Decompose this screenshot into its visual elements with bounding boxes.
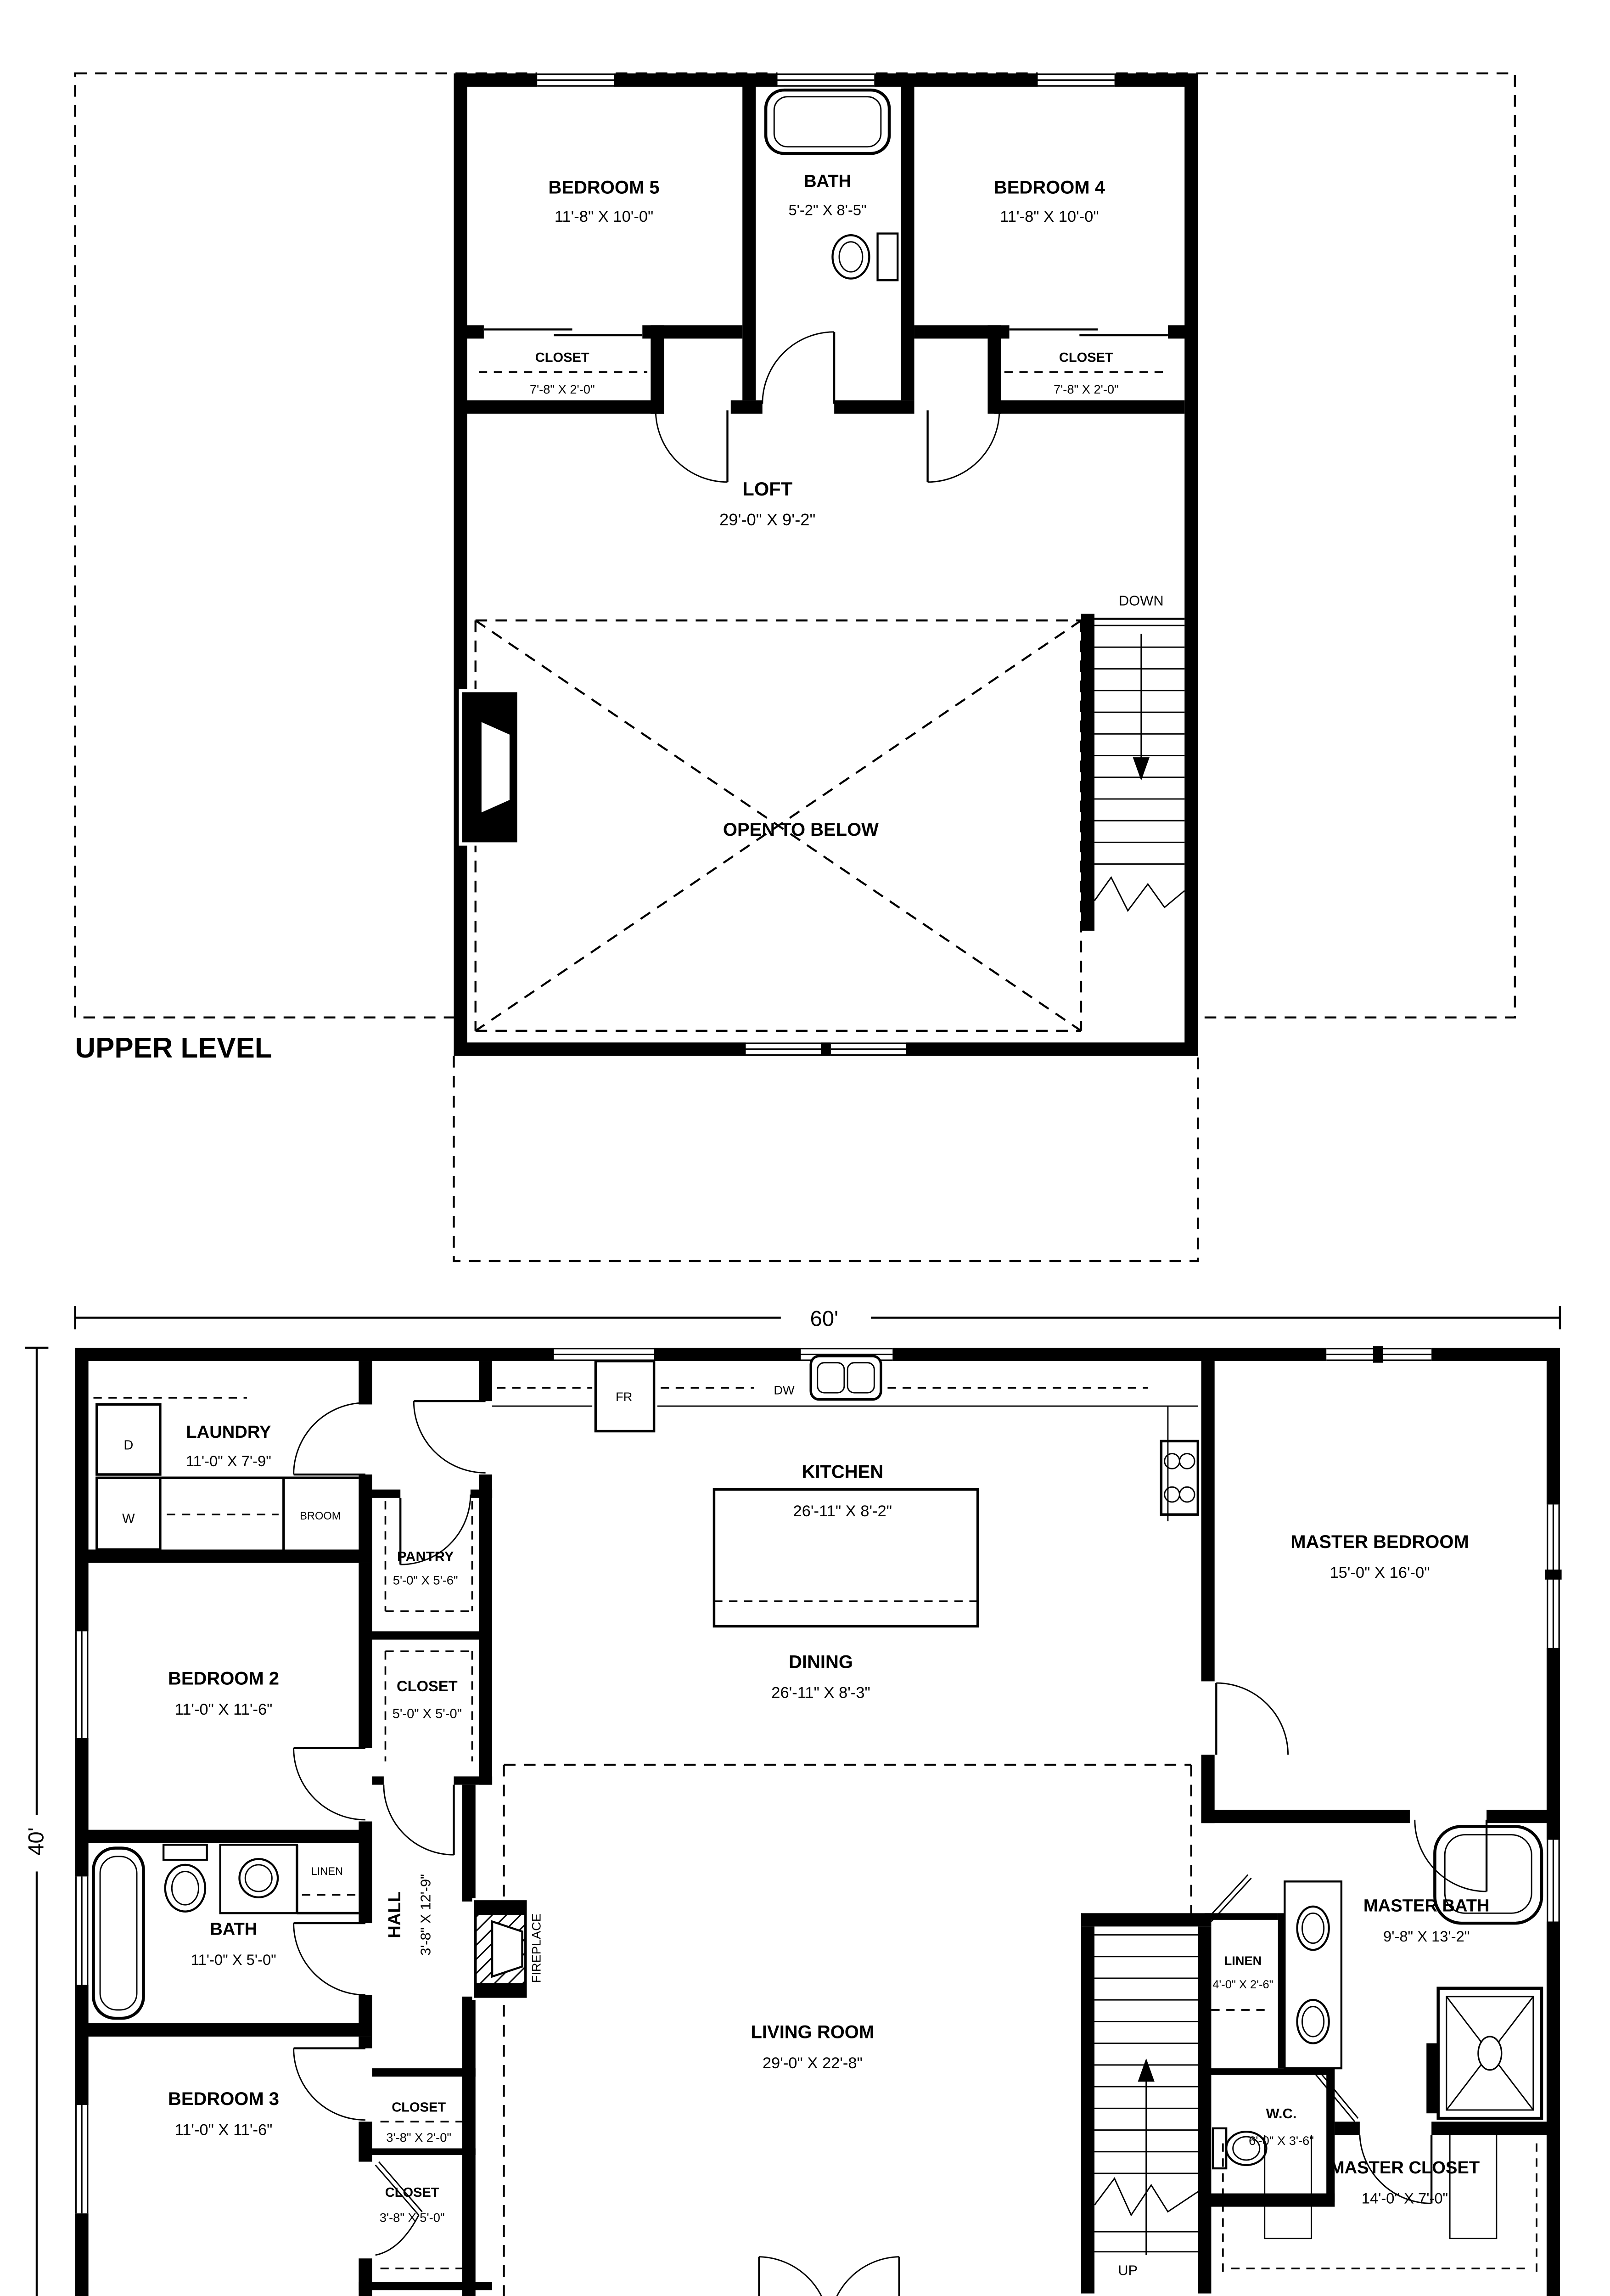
window-icon	[73, 1876, 90, 1985]
dishwasher-label: DW	[774, 1383, 795, 1397]
room-size-laundry: 11'-0" X 7'-9"	[186, 1452, 271, 1469]
window-icon	[1545, 1840, 1561, 1921]
room-label-upper-bath: BATH	[804, 171, 851, 191]
upper-level-title: UPPER LEVEL	[75, 1032, 272, 1064]
room-size-loft: 29'-0" X 9'-2"	[719, 510, 815, 529]
room-size-pantry: 5'-0" X 5'-6"	[393, 1573, 458, 1587]
room-size-master-bath: 9'-8" X 13'-2"	[1383, 1928, 1470, 1945]
room-size-bedroom4: 11'-8" X 10'-0"	[1000, 208, 1099, 225]
window-icon	[1545, 1504, 1561, 1648]
room-label-closet-right: CLOSET	[1059, 350, 1113, 365]
room-size-closet-left: 7'-8" X 2'-0"	[530, 382, 595, 396]
room-label-dining: DINING	[789, 1652, 853, 1672]
window-icon	[1038, 72, 1114, 88]
room-size-closet-bedroom2: 5'-0" X 5'-0"	[393, 1706, 462, 1721]
room-label-closet-bedroom3: CLOSET	[385, 2185, 439, 2200]
stairs-down-label: DOWN	[1119, 593, 1164, 609]
dryer-label: D	[123, 1438, 133, 1453]
floor-plan-canvas: BEDROOM 5 11'-8" X 10'-0" BATH 5'-2" X 8…	[0, 0, 1610, 2296]
room-label-master-bath: MASTER BATH	[1363, 1896, 1490, 1916]
window-icon	[746, 1041, 821, 1058]
room-size-bedroom3: 11'-0" X 11'-6"	[175, 2121, 273, 2138]
room-label-bedroom3: BEDROOM 3	[168, 2089, 279, 2109]
room-label-linen-master: LINEN	[1224, 1953, 1262, 1968]
room-label-bedroom2: BEDROOM 2	[168, 1669, 279, 1689]
room-size-bedroom2: 11'-0" X 11'-6"	[175, 1701, 273, 1718]
room-size-linen-master: 4'-0" X 2'-6"	[1212, 1978, 1273, 1991]
lower-level-plan: LAUNDRY 11'-0" X 7'-9" D W BROOM PANTRY …	[73, 1346, 1562, 2296]
room-label-bedroom5: BEDROOM 5	[549, 177, 660, 197]
room-label-closet-hall: CLOSET	[392, 2100, 446, 2115]
room-size-master-closet: 14'-0" X 7'-0"	[1362, 2189, 1448, 2206]
room-label-kitchen: KITCHEN	[802, 1462, 883, 1482]
fridge-label: FR	[616, 1390, 632, 1404]
room-size-upper-bath: 5'-2" X 8'-5"	[788, 202, 866, 219]
room-label-laundry: LAUNDRY	[186, 1422, 271, 1442]
room-label-living: LIVING ROOM	[751, 2022, 875, 2043]
room-label-closet-bedroom2: CLOSET	[397, 1677, 458, 1694]
room-label-bath: BATH	[210, 1919, 257, 1939]
linen-label: LINEN	[311, 1866, 343, 1878]
stairs-up-label: UP	[1118, 2262, 1138, 2279]
window-icon	[73, 2105, 90, 2213]
room-size-bedroom5: 11'-8" X 10'-0"	[555, 208, 653, 225]
room-size-hall: 3'-8" X 12'-9"	[418, 1874, 434, 1956]
window-icon	[831, 1041, 906, 1058]
room-label-bedroom4: BEDROOM 4	[994, 177, 1105, 197]
room-size-closet-bedroom3: 3'-8" X 5'-0"	[380, 2210, 445, 2224]
room-label-closet-left: CLOSET	[535, 350, 589, 365]
room-label-wc: W.C.	[1266, 2105, 1297, 2122]
fireplace-label: FIREPLACE	[529, 1913, 543, 1983]
room-size-kitchen: 26'-11" X 8'-2"	[793, 1503, 892, 1520]
room-size-living: 29'-0" X 22'-8"	[763, 2054, 863, 2072]
room-size-closet-hall: 3'-8" X 2'-0"	[386, 2130, 451, 2144]
room-size-closet-right: 7'-8" X 2'-0"	[1054, 382, 1119, 396]
room-size-bath: 11'-0" X 5'-0"	[191, 1951, 276, 1968]
dimension-width-label: 60'	[810, 1307, 839, 1331]
window-icon	[778, 72, 875, 88]
broom-label: BROOM	[300, 1510, 341, 1522]
fireplace-icon	[472, 1898, 529, 2000]
open-to-below-label: OPEN TO BELOW	[723, 820, 879, 840]
washer-label: W	[122, 1511, 135, 1526]
room-label-pantry: PANTRY	[397, 1548, 454, 1564]
window-icon	[1326, 1346, 1431, 1362]
room-size-master-bedroom: 15'-0" X 16'-0"	[1330, 1564, 1430, 1581]
room-size-wc: 6'-0" X 3'-6"	[1249, 2133, 1314, 2148]
window-icon	[537, 72, 614, 88]
fireplace-chimney-icon	[459, 689, 522, 845]
room-label-master-bedroom: MASTER BEDROOM	[1290, 1532, 1469, 1552]
room-size-dining: 26'-11" X 8'-3"	[771, 1684, 870, 1702]
dimension-height-label: 40'	[24, 1827, 48, 1856]
room-label-loft: LOFT	[742, 478, 793, 500]
room-label-hall: HALL	[385, 1891, 404, 1938]
window-icon	[73, 1631, 90, 1738]
kitchen-sink-icon	[811, 1356, 881, 1399]
room-label-master-closet: MASTER CLOSET	[1330, 2158, 1480, 2178]
